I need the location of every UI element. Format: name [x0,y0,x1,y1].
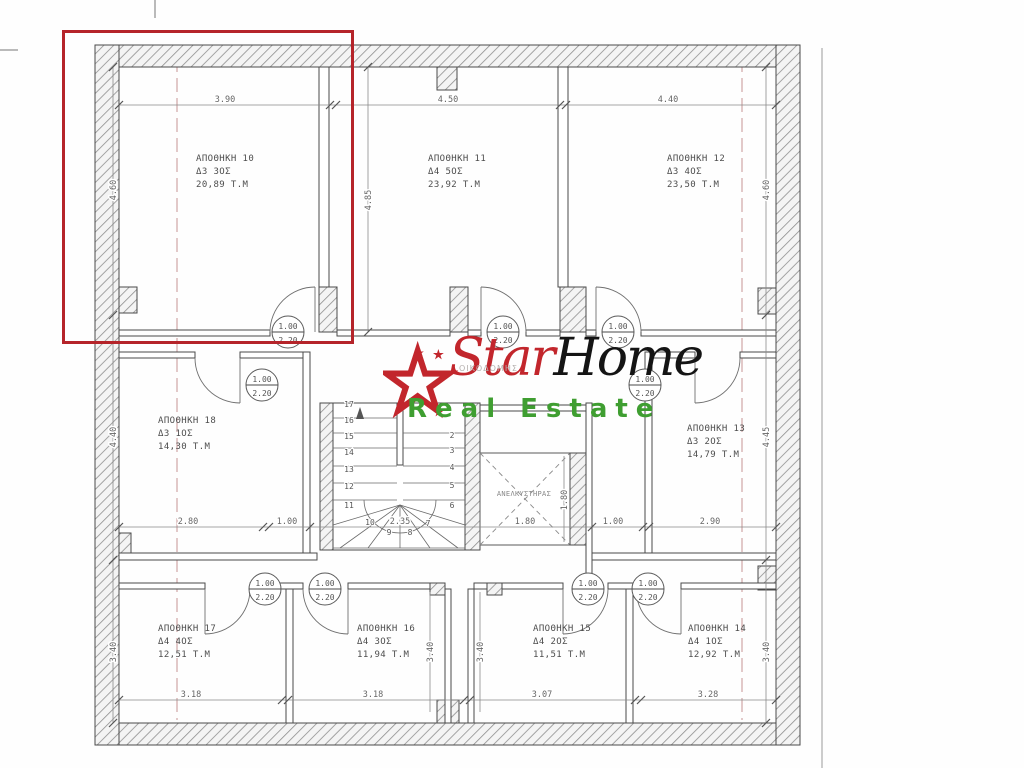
svg-text:1.00: 1.00 [255,579,274,588]
door-size-badge: 1.002.20 [632,573,664,605]
door-size-badge: 1.002.20 [572,573,604,605]
svg-text:11: 11 [344,501,354,510]
svg-text:Δ4 4ΟΣ: Δ4 4ΟΣ [158,637,193,647]
svg-text:2.80: 2.80 [178,517,198,527]
svg-text:3.40: 3.40 [762,642,772,662]
svg-text:3: 3 [450,446,455,455]
svg-text:4.85: 4.85 [364,190,374,210]
door-size-badge: 1.002.20 [629,369,661,401]
svg-text:ΑΠΟΘΗΚΗ 16: ΑΠΟΘΗΚΗ 16 [357,624,415,634]
svg-text:Δ3 4ΟΣ: Δ3 4ΟΣ [667,167,702,177]
svg-text:14,30 Τ.Μ: 14,30 Τ.Μ [158,442,211,452]
room-label-13: ΑΠΟΘΗΚΗ 13Δ3 2ΟΣ14,79 Τ.Μ [687,424,745,460]
svg-text:ΑΠΟΘΗΚΗ 15: ΑΠΟΘΗΚΗ 15 [533,624,591,634]
svg-text:2.20: 2.20 [315,593,334,602]
svg-text:ΑΠΟΘΗΚΗ 17: ΑΠΟΘΗΚΗ 17 [158,624,216,634]
svg-text:ΑΠΟΘΗΚΗ 13: ΑΠΟΘΗΚΗ 13 [687,424,745,434]
svg-text:4.40: 4.40 [658,95,678,105]
svg-text:Δ4 1ΟΣ: Δ4 1ΟΣ [688,637,723,647]
svg-text:3.07: 3.07 [532,690,552,700]
svg-text:5: 5 [450,481,455,490]
svg-text:ΑΠΟΘΗΚΗ 14: ΑΠΟΘΗΚΗ 14 [688,624,746,634]
svg-text:4.60: 4.60 [762,180,772,200]
room-label-17: ΑΠΟΘΗΚΗ 17Δ4 4ΟΣ12,51 Τ.Μ [158,624,216,660]
svg-text:3.28: 3.28 [698,690,718,700]
room-label-15: ΑΠΟΘΗΚΗ 15Δ4 2ΟΣ11,51 Τ.Μ [533,624,591,660]
svg-text:6: 6 [450,501,455,510]
door-size-badge: 1.002.20 [487,316,519,348]
svg-text:11,51 Τ.Μ: 11,51 Τ.Μ [533,650,586,660]
svg-text:1.00: 1.00 [603,517,623,527]
svg-text:2.20: 2.20 [638,593,657,602]
elevator: ΑΝΕΛΚΥΣΤΗΡΑΣ [480,453,586,545]
svg-text:9: 9 [387,528,392,537]
svg-text:1.00: 1.00 [493,322,512,331]
svg-text:2.20: 2.20 [608,336,627,345]
svg-text:Δ4 3ΟΣ: Δ4 3ΟΣ [357,637,392,647]
svg-text:17: 17 [344,400,354,409]
svg-text:2.20: 2.20 [255,593,274,602]
svg-text:2.20: 2.20 [578,593,597,602]
svg-text:1.00: 1.00 [277,517,297,527]
svg-text:2.20: 2.20 [493,336,512,345]
svg-text:1.00: 1.00 [608,322,627,331]
staircase: 17 16 15 14 13 12 11 2 3 4 5 6 10 9 8 7 [320,400,480,550]
svg-text:ΑΠΟΘΗΚΗ 12: ΑΠΟΘΗΚΗ 12 [667,154,725,164]
svg-text:11,94 Τ.Μ: 11,94 Τ.Μ [357,650,410,660]
svg-text:14: 14 [344,448,354,457]
door-size-badge: 1.002.20 [246,369,278,401]
svg-text:12,92 Τ.Μ: 12,92 Τ.Μ [688,650,741,660]
svg-text:3.40: 3.40 [426,642,436,662]
svg-text:4.40: 4.40 [109,427,119,447]
room-label-11: ΑΠΟΘΗΚΗ 11Δ4 5ΟΣ23,92 Τ.Μ [428,154,486,190]
svg-text:Δ3 1ΟΣ: Δ3 1ΟΣ [158,429,193,439]
svg-text:2.35: 2.35 [390,517,410,527]
svg-text:12,51 Τ.Μ: 12,51 Τ.Μ [158,650,211,660]
svg-text:1.00: 1.00 [635,375,654,384]
svg-text:Δ4 5ΟΣ: Δ4 5ΟΣ [428,167,463,177]
svg-text:23,50 Τ.Μ: 23,50 Τ.Μ [667,180,720,190]
svg-text:16: 16 [344,416,354,425]
room-label-12: ΑΠΟΘΗΚΗ 12Δ3 4ΟΣ23,50 Τ.Μ [667,154,725,190]
room-label-18: ΑΠΟΘΗΚΗ 18Δ3 1ΟΣ14,30 Τ.Μ [158,416,216,452]
room-label-16: ΑΠΟΘΗΚΗ 16Δ4 3ΟΣ11,94 Τ.Μ [357,624,415,660]
svg-text:1.80: 1.80 [560,490,570,510]
svg-text:3.18: 3.18 [181,690,201,700]
svg-text:15: 15 [344,432,354,441]
svg-text:Δ3 2ΟΣ: Δ3 2ΟΣ [687,437,722,447]
door-size-badge: 1.002.20 [249,573,281,605]
svg-text:1.00: 1.00 [578,579,597,588]
svg-text:3.40: 3.40 [109,642,119,662]
highlight-rectangle [62,30,354,344]
svg-text:12: 12 [344,482,354,491]
room-label-14: ΑΠΟΘΗΚΗ 14Δ4 1ΟΣ12,92 Τ.Μ [688,624,746,660]
svg-text:1.80: 1.80 [515,517,535,527]
svg-text:ΑΠΟΘΗΚΗ 11: ΑΠΟΘΗΚΗ 11 [428,154,486,164]
svg-text:10: 10 [365,518,375,527]
svg-text:1.00: 1.00 [638,579,657,588]
svg-text:1.00: 1.00 [252,375,271,384]
floor-plan-page: 17 16 15 14 13 12 11 2 3 4 5 6 10 9 8 7 … [0,0,1024,768]
svg-text:Δ4 2ΟΣ: Δ4 2ΟΣ [533,637,568,647]
svg-text:4.50: 4.50 [438,95,458,105]
svg-text:8: 8 [408,528,413,537]
svg-text:3.18: 3.18 [363,690,383,700]
svg-text:ΑΠΟΘΗΚΗ 18: ΑΠΟΘΗΚΗ 18 [158,416,216,426]
elevator-label: ΑΝΕΛΚΥΣΤΗΡΑΣ [497,490,551,498]
svg-text:2.20: 2.20 [635,389,654,398]
door-size-badge: 1.002.20 [309,573,341,605]
svg-text:1.00: 1.00 [315,579,334,588]
svg-text:2.20: 2.20 [252,389,271,398]
door-size-badge: 1.002.20 [602,316,634,348]
svg-text:2.90: 2.90 [700,517,720,527]
svg-text:23,92 Τ.Μ: 23,92 Τ.Μ [428,180,481,190]
svg-text:4.45: 4.45 [762,427,772,447]
svg-text:2: 2 [450,431,455,440]
svg-text:3.40: 3.40 [476,642,486,662]
svg-text:13: 13 [344,465,354,474]
svg-text:4: 4 [450,463,455,472]
svg-text:14,79 Τ.Μ: 14,79 Τ.Μ [687,450,740,460]
